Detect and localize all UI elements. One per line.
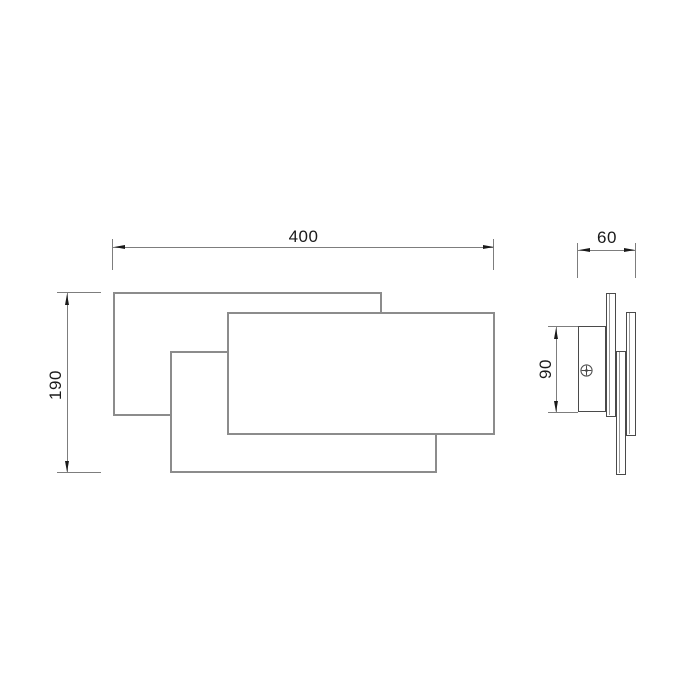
extension-line-bottom [548, 412, 578, 413]
dimension-label-bracket-height: 90 [537, 338, 555, 400]
extension-line-top [548, 326, 578, 327]
front-view-front-panel [227, 312, 495, 435]
technical-drawing-canvas: 400 190 60 [0, 0, 700, 700]
arrowhead-down-icon [554, 401, 558, 412]
dimension-line [556, 327, 557, 412]
